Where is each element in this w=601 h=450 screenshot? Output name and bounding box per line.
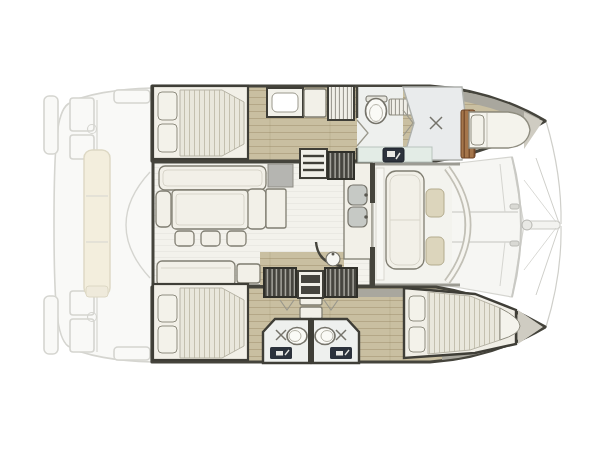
port-bow-berth [469,112,530,148]
dining-table [172,190,248,229]
saloon-side-seat [156,191,171,227]
toilet-left [287,328,307,345]
port-galley-units [267,86,354,120]
port-aft-cabin-bed [153,86,248,159]
side-step-port [114,90,150,103]
dining-chairs [175,231,246,246]
swim-platform-port [44,96,58,154]
cockpit-cushion-2 [426,237,444,265]
port-companionway-stairs [300,149,354,179]
toilet [366,96,388,124]
galley-sink-1 [348,185,367,205]
toilet-right [315,328,335,345]
port-galley-basin [272,93,298,112]
bathroom-divider [308,319,314,363]
stbd-forward-cabin-bed [404,288,520,358]
stbd-aft-cabin-bed [153,284,248,360]
stbd-aft-mattress [180,288,244,358]
landing-step-2 [301,286,320,294]
port-galley-cabinet [304,89,326,117]
port-louver-hatch [328,86,354,120]
saloon-cabinet [266,189,286,228]
vanity-left [270,347,292,359]
vanity-right [330,347,352,359]
faucet-dot-1 [364,193,368,197]
aft-cockpit-deck [44,88,152,362]
side-step-starboard [114,347,150,360]
appliance-unit [383,148,404,162]
port-bathroom [357,87,475,162]
stbd-coil-ladder-right [325,268,357,297]
stbd-anchor-locker [518,310,543,344]
walkway-strip [376,168,384,280]
cockpit-cushion-1 [426,189,444,217]
saloon-door-post-top [370,163,375,203]
foredeck-plate [450,157,524,297]
stbd-coil-ladder-left [264,268,296,297]
stbd-companionway-stairs [264,268,357,298]
port-aft-mattress [180,90,244,156]
nav-unit [268,164,293,187]
swim-platform-starboard [44,296,58,354]
landing-step-1 [301,275,320,283]
catamaran-floor-plan [0,0,601,450]
round-sink-faucet [332,253,335,256]
bowsprit-fitting [522,220,532,230]
port-coil-ladder [328,152,354,179]
aft-settee [157,261,260,286]
floor-plan-canvas [0,0,601,450]
faucet-dot-2 [364,215,368,219]
galley-sink-2 [348,207,367,227]
aft-bench [84,150,110,296]
cockpit-table [386,171,424,269]
saloon-door-post-bottom [370,247,375,287]
